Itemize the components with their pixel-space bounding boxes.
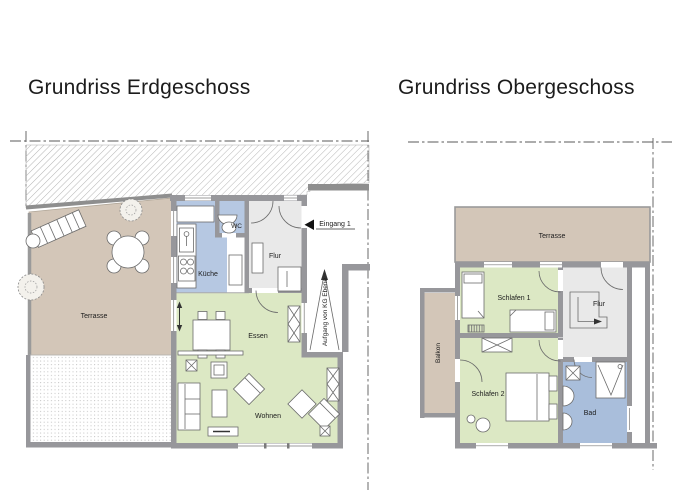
gf-label-flur: Flur — [269, 253, 282, 260]
plant-icon — [18, 274, 44, 300]
bed-single — [462, 272, 484, 318]
og-label-schlafen2: Schlafen 2 — [471, 391, 504, 398]
og-label-bad: Bad — [584, 410, 597, 417]
gravel-left-wall — [26, 355, 31, 447]
og-label-terrasse: Terrasse — [539, 233, 566, 240]
shelf-x-tall — [288, 306, 300, 342]
washing-machine-icon — [566, 366, 580, 380]
shelf-x-tall — [327, 368, 339, 401]
side-table-x — [186, 360, 197, 371]
sofa — [178, 383, 200, 430]
gf-label-eingang: Eingang 1 — [319, 221, 351, 228]
gravel-area — [30, 355, 172, 443]
og-label-schlafen1: Schlafen 1 — [497, 295, 530, 302]
gf-label-aufgang: Aufgang von KG Ebene — [322, 277, 329, 346]
stool — [467, 415, 475, 423]
hall-cabinet — [252, 243, 263, 273]
og-label-flur: Flur — [593, 301, 606, 308]
sideboard — [178, 351, 243, 355]
ground-floor-plan: Terrasse Küche WC Flur Essen Wohnen Eing… — [10, 131, 370, 490]
og-room-flur — [563, 267, 627, 357]
gf-label-kueche: Küche — [198, 271, 218, 278]
retaining-wall-right — [308, 184, 369, 191]
dresser — [468, 325, 484, 332]
gf-label-terrasse: Terrasse — [81, 313, 108, 320]
tv-board — [208, 427, 238, 436]
coffee-table — [212, 390, 227, 417]
hall-closet — [278, 267, 301, 291]
og-label-balkon: Balkon — [435, 343, 442, 363]
bed-double — [506, 373, 557, 421]
floorplan-drawing: Terrasse Küche WC Flur Essen Wohnen Eing… — [0, 0, 700, 500]
gf-label-essen: Essen — [248, 333, 268, 340]
gf-label-wc: WC — [231, 223, 242, 230]
round-table-with-chairs — [107, 231, 149, 273]
fridge-icon — [229, 255, 242, 285]
wardrobe-x — [482, 338, 512, 352]
armchair — [211, 362, 227, 378]
bed-single — [510, 310, 556, 332]
shower-icon — [596, 362, 625, 398]
side-table-x — [320, 426, 330, 436]
plant-icon — [120, 199, 142, 221]
gf-label-wohnen: Wohnen — [255, 413, 281, 420]
gravel-bottom-wall — [26, 442, 172, 448]
floorplan-canvas: Grundriss Erdgeschoss Grundriss Obergesc… — [0, 0, 700, 500]
gf-room-terrasse — [29, 198, 172, 355]
upper-floor-plan: Terrasse Schlafen 1 Flur Schlafen 2 Bad … — [408, 138, 672, 470]
stool — [476, 418, 490, 432]
